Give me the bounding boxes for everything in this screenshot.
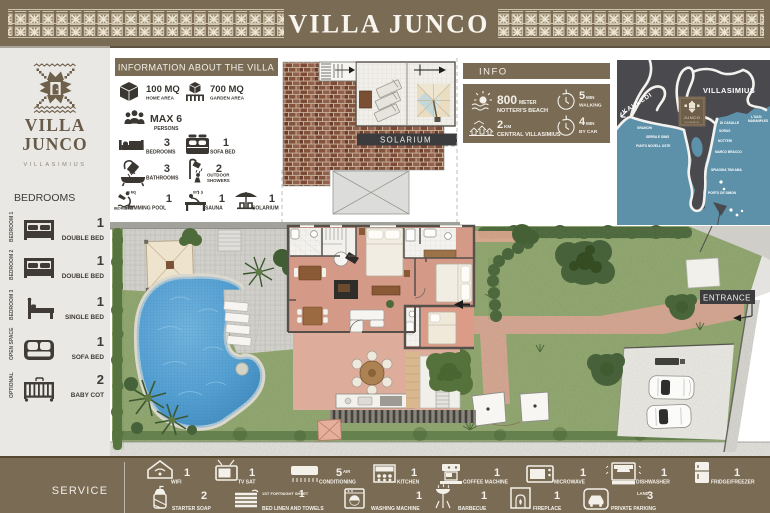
svg-text:MIN: MIN	[586, 95, 595, 100]
svg-text:BARBECUE: BARBECUE	[458, 506, 487, 512]
svg-text:DOUBLE BED: DOUBLE BED	[62, 273, 105, 280]
svg-text:WASHING MACHINE: WASHING MACHINE	[371, 506, 420, 512]
svg-text:1: 1	[734, 467, 740, 479]
svg-text:1: 1	[494, 467, 500, 479]
svg-text:INFORMATION ABOUT THE VILLA: INFORMATION ABOUT THE VILLA	[118, 63, 275, 73]
svg-text:BEDROOM 2: BEDROOM 2	[9, 250, 15, 281]
svg-text:ENTRANCE: ENTRANCE	[703, 294, 751, 303]
svg-text:OPEN SPACE: OPEN SPACE	[9, 327, 15, 360]
svg-text:CONDITIONING: CONDITIONING	[319, 480, 356, 486]
svg-text:PRIVATE PARKING: PRIVATE PARKING	[611, 506, 656, 512]
svg-text:HOME AREA: HOME AREA	[146, 96, 175, 101]
svg-text:5: 5	[579, 90, 585, 102]
svg-text:MICROWAVE: MICROWAVE	[554, 480, 586, 486]
svg-text:SHOWERS: SHOWERS	[207, 178, 230, 183]
svg-text:DOUBLE BED: DOUBLE BED	[62, 235, 105, 242]
svg-text:GRANCHI: GRANCHI	[637, 126, 652, 130]
svg-text:METER: METER	[519, 100, 537, 106]
svg-text:1: 1	[97, 294, 104, 309]
svg-text:1: 1	[97, 215, 104, 230]
svg-text:VILLA JUNCO: VILLA JUNCO	[288, 10, 489, 39]
svg-text:1: 1	[411, 467, 417, 479]
svg-text:VILLA: VILLA	[25, 115, 85, 135]
svg-text:SWIMMING POOL: SWIMMING POOL	[124, 206, 166, 212]
svg-text:VILLASIMIUS: VILLASIMIUS	[685, 121, 700, 124]
svg-text:2: 2	[497, 119, 503, 131]
svg-text:SERRA E SINIS: SERRA E SINIS	[646, 135, 669, 139]
svg-text:700 MQ: 700 MQ	[210, 84, 244, 95]
svg-text:VILLASIMIUS: VILLASIMIUS	[703, 86, 755, 95]
svg-text:1: 1	[223, 137, 229, 149]
svg-text:3: 3	[164, 163, 170, 175]
svg-text:OPTIONAL: OPTIONAL	[9, 372, 15, 398]
svg-text:FIREPLACE: FIREPLACE	[533, 506, 562, 512]
svg-text:4: 4	[579, 116, 586, 128]
svg-text:JUNCO: JUNCO	[22, 134, 87, 154]
svg-text:SPIAGGIA TIMI AMA: SPIAGGIA TIMI AMA	[711, 168, 742, 172]
svg-text:COFFEE MACHINE: COFFEE MACHINE	[463, 480, 509, 486]
svg-text:SOFA BED: SOFA BED	[72, 354, 105, 361]
svg-text:MARCO BRACCO: MARCO BRACCO	[715, 150, 742, 154]
svg-text:1: 1	[219, 193, 225, 205]
svg-text:DISHWASHER: DISHWASHER	[636, 480, 670, 486]
svg-text:100 MQ: 100 MQ	[146, 84, 180, 95]
svg-text:CENTRAL VILLASIMIUS: CENTRAL VILLASIMIUS	[497, 132, 561, 138]
svg-text:3: 3	[647, 490, 653, 502]
svg-text:TV SAT: TV SAT	[238, 480, 255, 486]
svg-text:PORTO DE SIMON: PORTO DE SIMON	[708, 191, 737, 195]
svg-text:1: 1	[554, 490, 560, 502]
svg-text:SOFA BED: SOFA BED	[210, 150, 236, 156]
svg-text:1: 1	[97, 253, 104, 268]
svg-text:800: 800	[497, 93, 517, 107]
svg-text:NOTTERI: NOTTERI	[718, 139, 732, 143]
svg-text:1: 1	[299, 489, 305, 500]
svg-text:GARDEN AREA: GARDEN AREA	[210, 96, 245, 101]
svg-text:2: 2	[97, 372, 104, 387]
svg-text:BEDROOMS: BEDROOMS	[146, 150, 176, 156]
svg-text:MAX 6: MAX 6	[150, 113, 182, 125]
svg-text:BEDROOMS: BEDROOMS	[14, 192, 75, 204]
svg-text:SINGLE BED: SINGLE BED	[65, 314, 104, 321]
svg-text:STARTER SOAP: STARTER SOAP	[172, 506, 211, 512]
svg-text:PERSONS: PERSONS	[154, 126, 179, 132]
svg-text:SERVICE: SERVICE	[52, 485, 109, 497]
svg-text:1: 1	[249, 467, 255, 479]
svg-text:1: 1	[97, 334, 104, 349]
svg-text:1: 1	[184, 467, 190, 479]
svg-text:DI CASULLE: DI CASULLE	[720, 121, 739, 125]
svg-text:WIFI: WIFI	[171, 480, 182, 486]
svg-text:PUNTO NOVELL OSTE: PUNTO NOVELL OSTE	[636, 144, 670, 148]
svg-text:FRIDGE/FREEZER: FRIDGE/FREEZER	[711, 480, 755, 486]
svg-text:MIN: MIN	[586, 121, 595, 126]
svg-text:OUTDOOR: OUTDOOR	[207, 173, 230, 178]
svg-text:BED LINEN AND TOWELS: BED LINEN AND TOWELS	[262, 506, 324, 512]
svg-text:BABY COT: BABY COT	[71, 392, 104, 399]
svg-text:5: 5	[336, 467, 342, 479]
svg-text:1: 1	[580, 467, 586, 479]
svg-text:NOTTERI'S BEACH: NOTTERI'S BEACH	[497, 108, 548, 114]
svg-text:SORUS: SORUS	[719, 129, 730, 133]
svg-text:BATHROOMS: BATHROOMS	[146, 176, 179, 182]
svg-text:BEDROOM 1: BEDROOM 1	[9, 212, 15, 243]
svg-text:BY CAR: BY CAR	[579, 129, 598, 135]
svg-text:1: 1	[481, 490, 487, 502]
svg-text:SAUNA: SAUNA	[205, 206, 223, 212]
svg-text:KITCHEN: KITCHEN	[397, 480, 420, 486]
svg-text:SOLARIUM: SOLARIUM	[380, 136, 432, 145]
svg-text:AIR: AIR	[343, 469, 350, 474]
svg-text:VILLASIMIUS: VILLASIMIUS	[23, 162, 86, 168]
svg-text:1: 1	[661, 467, 667, 479]
svg-text:1: 1	[269, 193, 275, 205]
svg-text:JUNCO: JUNCO	[684, 115, 701, 120]
svg-text:BEDROOM 3: BEDROOM 3	[9, 290, 15, 321]
svg-text:2: 2	[201, 490, 207, 502]
svg-text:3: 3	[164, 137, 170, 149]
svg-text:SOLARIUM: SOLARIUM	[252, 206, 279, 212]
svg-text:MARANPLES: MARANPLES	[748, 119, 768, 123]
svg-text:KM: KM	[504, 124, 511, 129]
svg-text:1: 1	[166, 193, 172, 205]
svg-text:1: 1	[416, 490, 422, 502]
svg-text:WALKING: WALKING	[579, 103, 602, 109]
